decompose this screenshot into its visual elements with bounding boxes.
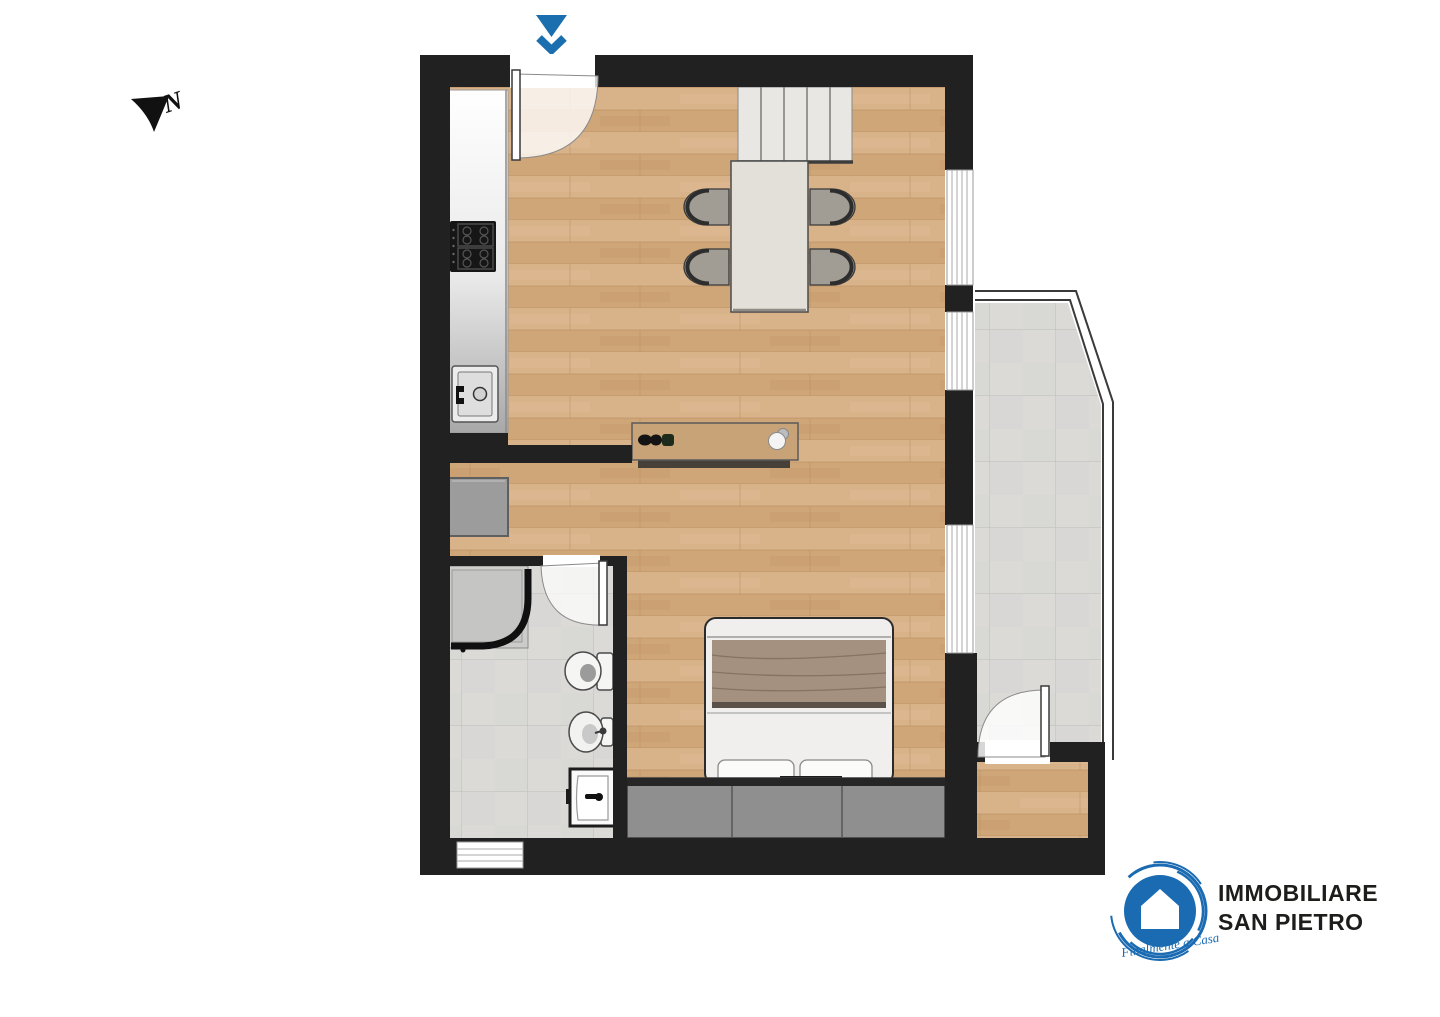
wall-bathroom-right — [613, 556, 627, 838]
shower — [447, 566, 528, 653]
wall-top — [420, 55, 973, 87]
wardrobe-bench — [627, 778, 945, 838]
wall-storage-right — [1088, 742, 1105, 875]
toilet — [565, 652, 613, 690]
logo-name-line2: SAN PIETRO — [1218, 909, 1364, 935]
wall-kitchen-end — [448, 433, 508, 463]
dining-chair — [810, 189, 855, 225]
wall-left — [420, 55, 450, 875]
wall-bathroom-top — [448, 556, 543, 566]
decor-item — [650, 435, 662, 446]
dining-chair — [684, 189, 729, 225]
wall-right-lower — [945, 653, 977, 838]
north-label: N — [158, 85, 187, 119]
dining-chair — [810, 249, 855, 285]
door-leaf — [1041, 686, 1049, 756]
bed-blanket — [712, 640, 886, 704]
logo-mark — [1096, 847, 1224, 975]
door-leaf — [512, 70, 520, 160]
kitchen-area — [448, 90, 508, 433]
wall-right-upper — [945, 87, 973, 170]
storage-room-floor — [977, 762, 1088, 838]
stove-cooktop — [450, 221, 496, 272]
logo-name-line1: IMMOBILIARE — [1218, 880, 1378, 906]
company-logo: IMMOBILIARE SAN PIETRO Finalmente a Casa — [1096, 847, 1378, 975]
kitchen-sink — [452, 366, 498, 422]
decor-item — [662, 434, 674, 446]
double-bed — [705, 618, 893, 784]
balcony-floor — [975, 303, 1101, 742]
floor-plan: N — [0, 0, 1440, 1017]
window — [947, 525, 973, 653]
decor-item — [638, 435, 652, 446]
north-arrow: N — [131, 85, 187, 132]
sideboard — [632, 423, 798, 468]
dining-chair — [684, 249, 729, 285]
window — [947, 170, 973, 285]
wall-right-mid2 — [945, 390, 973, 525]
wall-right-mid — [945, 285, 973, 312]
window — [457, 842, 523, 868]
dining-table — [731, 161, 808, 312]
staircase — [737, 87, 853, 162]
washbasin — [566, 769, 615, 826]
wall-divider — [508, 445, 632, 463]
decor-plate — [769, 433, 786, 450]
bidet — [569, 712, 613, 752]
washing-machine — [449, 478, 508, 536]
door-leaf — [599, 561, 607, 625]
floorplan-canvas: N — [0, 0, 1440, 1017]
entrance-arrow-icon — [536, 15, 567, 50]
window — [947, 312, 973, 390]
